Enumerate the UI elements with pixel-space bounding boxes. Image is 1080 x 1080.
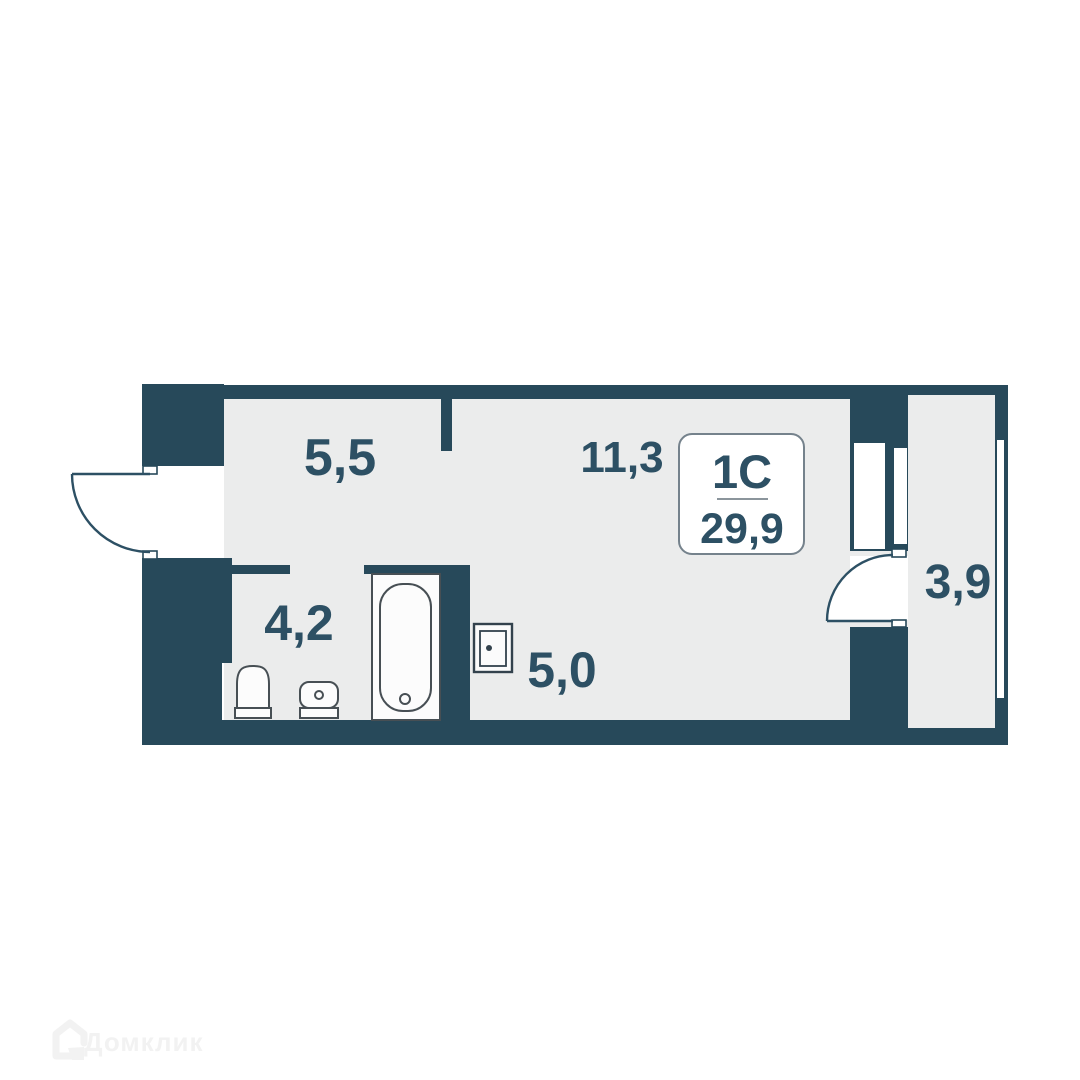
- room-label-bathroom: 4,2: [264, 595, 334, 651]
- wall-bathroom-left-lower: [142, 663, 222, 720]
- domklik-watermark-text: Домклик: [84, 1027, 203, 1057]
- wall-bathroom-right: [440, 565, 470, 720]
- wall-bathroom-top-left: [230, 565, 290, 574]
- window-sill-strip: [894, 448, 907, 544]
- window-pane-icon: [853, 442, 886, 550]
- floorplan-page: 5,5 11,3 4,2 5,0 3,9 1С 29,9 Домклик: [0, 0, 1080, 1080]
- balcony-door-jamb-top: [892, 549, 906, 557]
- electric-panel-icon: [474, 624, 512, 672]
- bathtub-icon: [372, 574, 440, 720]
- balcony-door-jamb-bottom: [892, 620, 906, 627]
- room-label-hallway: 5,5: [304, 429, 376, 487]
- wall-stub-hall: [441, 399, 452, 451]
- wall-bathroom-left-upper: [142, 558, 232, 663]
- unit-info-box: 1С 29,9: [679, 434, 804, 554]
- room-label-kitchen: 5,0: [527, 642, 597, 698]
- domklik-watermark: Домклик: [56, 1023, 203, 1060]
- wall-right-upper: [995, 385, 1008, 440]
- domklik-logo-icon: [56, 1023, 84, 1060]
- room-label-balcony: 3,9: [925, 556, 992, 609]
- wall-balcony-partition-bottom: [850, 627, 908, 720]
- wall-top-balcony: [908, 385, 1008, 395]
- sink-icon: [300, 682, 338, 718]
- floorplan-svg: 5,5 11,3 4,2 5,0 3,9 1С 29,9 Домклик: [0, 0, 1080, 1080]
- wall-top: [224, 385, 853, 399]
- wall-balcony-bottom: [908, 728, 995, 745]
- wall-balcony-partition-top: [850, 385, 908, 442]
- room-label-living: 11,3: [580, 433, 663, 482]
- balcony-glazing: [997, 440, 1004, 698]
- toilet-icon: [235, 666, 271, 718]
- unit-area-label: 29,9: [700, 505, 784, 553]
- wall-entry-block: [142, 384, 224, 466]
- unit-type-label: 1С: [712, 445, 772, 498]
- wall-bottom: [142, 720, 908, 745]
